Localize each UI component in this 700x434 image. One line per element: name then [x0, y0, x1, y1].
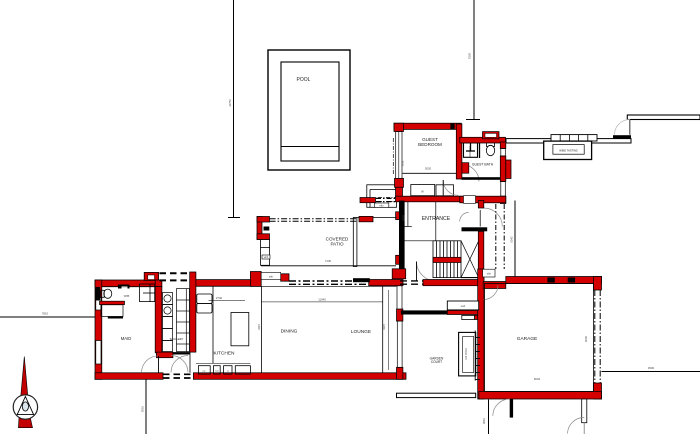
svg-text:7810: 7810 — [42, 312, 49, 316]
svg-text:whb: whb — [264, 256, 269, 259]
svg-text:4115: 4115 — [382, 324, 386, 330]
svg-text:wrd: wrd — [461, 304, 466, 308]
svg-text:COURT: COURT — [431, 360, 442, 364]
svg-text:BEDROOM: BEDROOM — [418, 142, 442, 147]
svg-text:POOL: POOL — [297, 77, 311, 83]
svg-text:4500: 4500 — [648, 366, 655, 370]
svg-text:6004: 6004 — [534, 377, 541, 381]
svg-text:2855: 2855 — [402, 214, 406, 221]
svg-text:WINE TASTING: WINE TASTING — [559, 149, 578, 153]
svg-text:11750: 11750 — [228, 99, 232, 107]
svg-text:2740: 2740 — [216, 296, 223, 300]
svg-text:W: W — [421, 190, 424, 194]
svg-text:stkr: stkr — [379, 204, 383, 208]
svg-text:MAID: MAID — [121, 336, 131, 341]
svg-text:3020: 3020 — [425, 167, 432, 171]
svg-text:5010: 5010 — [141, 405, 145, 412]
svg-text:ENTRANCE: ENTRANCE — [422, 216, 451, 222]
svg-text:SCULLERY: SCULLERY — [170, 337, 184, 341]
svg-text:7130: 7130 — [325, 259, 332, 263]
svg-text:KITCHEN: KITCHEN — [213, 351, 235, 357]
svg-text:GARAGE: GARAGE — [517, 336, 538, 342]
svg-text:LOUNGE: LOUNGE — [351, 329, 371, 335]
svg-text:GUEST BATH: GUEST BATH — [472, 163, 494, 167]
svg-text:WHB: WHB — [124, 295, 130, 298]
svg-text:6000: 6000 — [584, 335, 588, 342]
svg-text:4115: 4115 — [257, 324, 261, 330]
svg-text:11040: 11040 — [318, 298, 326, 302]
svg-text:5365: 5365 — [468, 52, 472, 59]
svg-text:PATIO: PATIO — [330, 242, 344, 247]
svg-text:stkr: stkr — [487, 272, 491, 276]
svg-text:DINING: DINING — [281, 329, 298, 335]
svg-text:KOI POND: KOI POND — [465, 348, 468, 360]
svg-text:5342: 5342 — [510, 236, 514, 243]
svg-text:3810: 3810 — [482, 417, 486, 424]
svg-text:1011: 1011 — [401, 160, 405, 166]
svg-text:stkr: stkr — [269, 275, 273, 279]
